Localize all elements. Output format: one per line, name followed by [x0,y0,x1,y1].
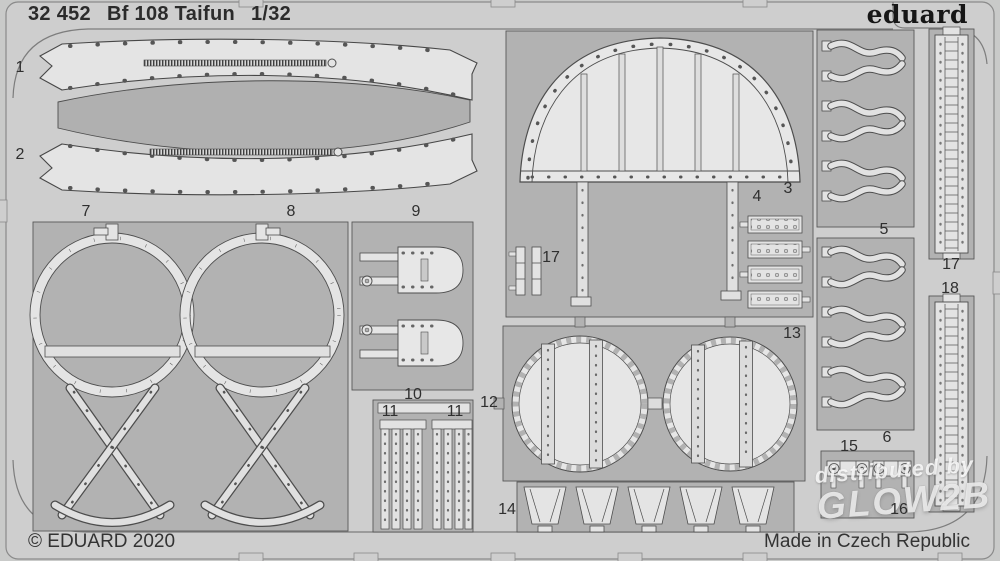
part-label-8: 8 [287,203,296,221]
part-label-1: 1 [16,59,25,77]
part-13-disc [663,337,797,471]
window-part-14 [517,482,794,532]
brand-logo: eduard [867,0,968,29]
part-label-4: 4 [753,188,762,206]
part-12-disc [512,336,648,472]
window-parts-12-13 [494,317,805,481]
window-parts-7-8 [30,222,348,531]
window-part-9 [352,222,473,390]
part-1-and-2-strips [40,39,477,195]
part-label-6: 6 [883,429,892,447]
part-label-11-right: 11 [447,403,464,421]
part-label-18: 18 [941,280,959,298]
part-label-7: 7 [82,203,91,221]
part-label-3: 3 [784,180,793,198]
part-label-2: 2 [16,146,25,164]
window-part-6-belts [817,238,914,430]
window-part-5-belts [817,30,914,227]
part-label-12: 12 [480,394,498,412]
part-label-14: 14 [498,501,516,519]
made-in-text: Made in Czech Republic [764,531,970,553]
part-label-11-left: 11 [382,403,399,421]
copyright-text: © EDUARD 2020 [28,531,175,553]
part-label-17-centre: 17 [542,249,560,267]
pe-fret-sheet: 32 452Bf 108 Taifun1/32 eduard © EDUARD … [0,0,1000,561]
part-label-9: 9 [412,203,421,221]
part-label-5: 5 [880,221,889,239]
part-label-16: 16 [890,501,908,519]
fret-graphic [0,0,1000,561]
part-label-10: 10 [404,386,422,404]
window-canopy [506,31,813,317]
part-label-15: 15 [840,438,858,456]
catalog-number: 32 452 [28,3,91,25]
window-part-18-strip [929,294,974,512]
scale: 1/32 [251,3,291,25]
product-name: Bf 108 Taifun [107,3,235,25]
window-part-17-strip [929,27,974,259]
part-label-13: 13 [783,325,801,343]
sheet-title: 32 452Bf 108 Taifun1/32 [28,3,291,26]
part-label-17-right: 17 [942,256,960,274]
